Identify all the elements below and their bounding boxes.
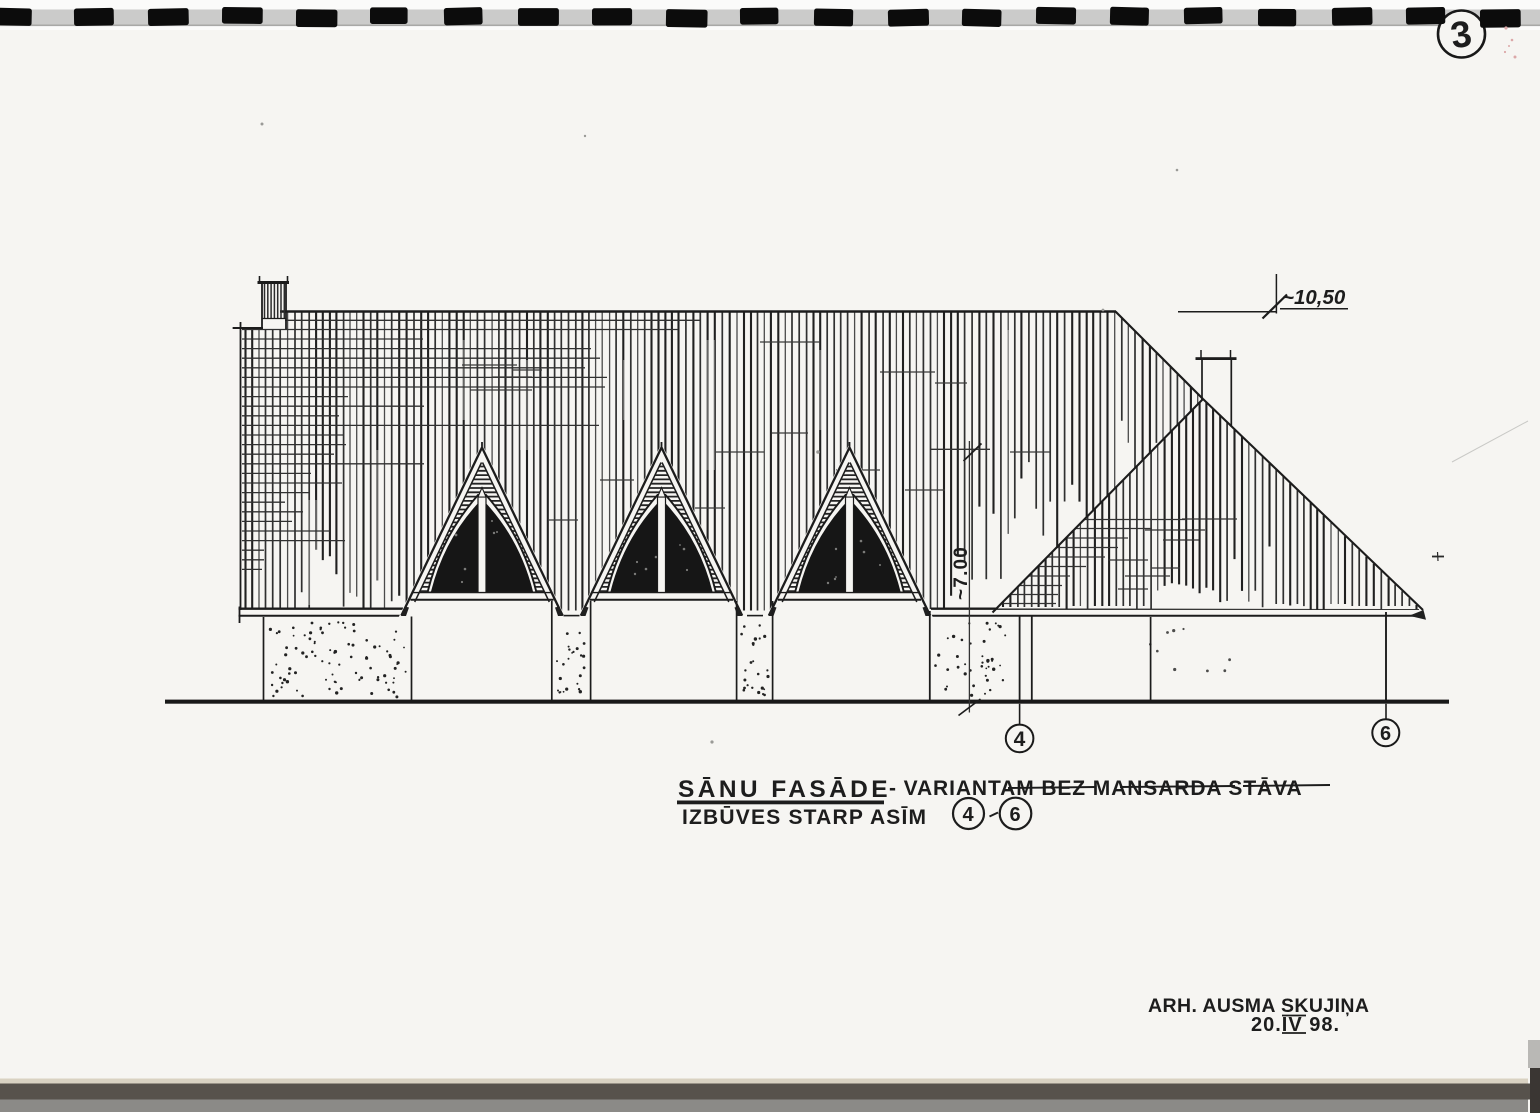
svg-text:- VARIANTAM BEZ MANSARDA STĀVA: - VARIANTAM BEZ MANSARDA STĀVA bbox=[889, 777, 1303, 800]
svg-text:~7.00: ~7.00 bbox=[951, 546, 972, 600]
svg-text:SĀNU FASĀDE: SĀNU FASĀDE bbox=[678, 776, 891, 803]
svg-text:~10,50: ~10,50 bbox=[1282, 286, 1346, 309]
svg-text:4: 4 bbox=[1014, 728, 1026, 751]
svg-text:IZBŪVES STARP ASĪM: IZBŪVES STARP ASĪM bbox=[682, 806, 927, 829]
svg-text:6: 6 bbox=[1009, 804, 1020, 826]
svg-text:4: 4 bbox=[962, 804, 974, 826]
svg-text:6: 6 bbox=[1380, 723, 1391, 745]
